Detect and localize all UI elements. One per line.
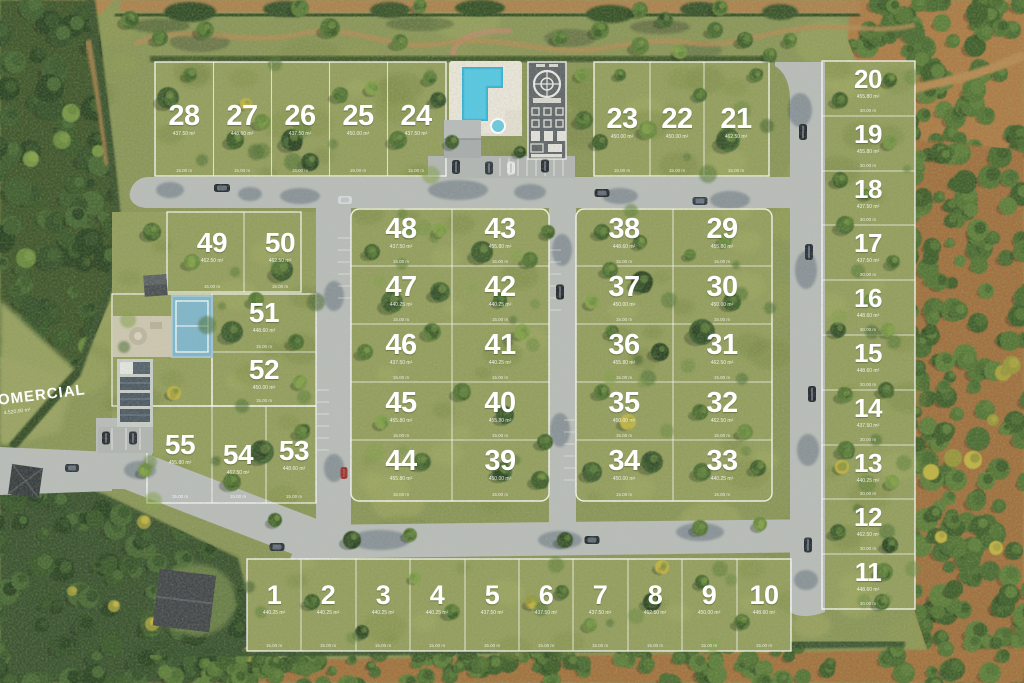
svg-text:15.00 m: 15.00 m bbox=[616, 375, 633, 380]
svg-text:4: 4 bbox=[430, 580, 445, 610]
svg-text:450.00 m²: 450.00 m² bbox=[489, 476, 512, 482]
svg-text:27: 27 bbox=[226, 100, 257, 132]
svg-text:437.50 m²: 437.50 m² bbox=[390, 360, 413, 366]
svg-text:437.50 m²: 437.50 m² bbox=[857, 204, 880, 210]
svg-text:440.25 m²: 440.25 m² bbox=[426, 610, 449, 616]
svg-text:30.00 m: 30.00 m bbox=[860, 327, 877, 332]
svg-text:55: 55 bbox=[165, 429, 195, 460]
svg-text:2: 2 bbox=[321, 580, 336, 610]
svg-text:462.50 m²: 462.50 m² bbox=[269, 258, 292, 264]
svg-text:455.80 m²: 455.80 m² bbox=[489, 418, 512, 424]
svg-text:440.25 m²: 440.25 m² bbox=[317, 610, 340, 616]
svg-text:450.00 m²: 450.00 m² bbox=[347, 131, 370, 137]
svg-text:30.00 m: 30.00 m bbox=[860, 163, 877, 168]
svg-text:15.00 m: 15.00 m bbox=[350, 168, 367, 173]
svg-text:32: 32 bbox=[706, 387, 737, 419]
svg-text:36: 36 bbox=[608, 329, 640, 361]
svg-text:30.00 m: 30.00 m bbox=[860, 601, 877, 606]
svg-text:15.00 m: 15.00 m bbox=[538, 643, 555, 648]
svg-text:15.00 m: 15.00 m bbox=[375, 643, 392, 648]
svg-text:462.50 m²: 462.50 m² bbox=[644, 610, 667, 616]
svg-text:15.00 m: 15.00 m bbox=[616, 492, 633, 497]
svg-text:437.50 m²: 437.50 m² bbox=[289, 131, 312, 137]
svg-text:39: 39 bbox=[484, 445, 516, 477]
svg-text:15.00 m: 15.00 m bbox=[714, 492, 731, 497]
svg-text:440.25 m²: 440.25 m² bbox=[372, 610, 395, 616]
svg-text:15.00 m: 15.00 m bbox=[492, 492, 509, 497]
svg-text:15.00 m: 15.00 m bbox=[492, 433, 509, 438]
svg-text:15.00 m: 15.00 m bbox=[714, 317, 731, 322]
svg-text:13: 13 bbox=[854, 448, 882, 478]
svg-text:51: 51 bbox=[249, 297, 279, 328]
svg-text:15.00 m: 15.00 m bbox=[714, 375, 731, 380]
svg-text:15: 15 bbox=[854, 338, 882, 368]
svg-text:48: 48 bbox=[385, 213, 417, 245]
svg-text:15.00 m: 15.00 m bbox=[429, 643, 446, 648]
svg-text:12: 12 bbox=[854, 502, 882, 532]
svg-text:450.00 m²: 450.00 m² bbox=[611, 134, 634, 140]
svg-text:15.00 m: 15.00 m bbox=[266, 643, 283, 648]
svg-text:50: 50 bbox=[265, 227, 295, 258]
svg-text:24: 24 bbox=[400, 100, 432, 132]
svg-text:437.50 m²: 437.50 m² bbox=[390, 244, 413, 250]
svg-text:437.50 m²: 437.50 m² bbox=[589, 610, 612, 616]
svg-text:54: 54 bbox=[223, 439, 254, 470]
svg-text:448.60 m²: 448.60 m² bbox=[253, 328, 276, 334]
svg-text:28: 28 bbox=[168, 100, 200, 132]
svg-text:29: 29 bbox=[706, 213, 738, 245]
svg-text:44: 44 bbox=[385, 445, 417, 477]
svg-text:34: 34 bbox=[608, 445, 640, 477]
svg-text:37: 37 bbox=[608, 271, 639, 303]
svg-text:15.00 m: 15.00 m bbox=[614, 168, 631, 173]
svg-text:30.00 m: 30.00 m bbox=[860, 217, 877, 222]
svg-text:15.00 m: 15.00 m bbox=[393, 433, 410, 438]
svg-text:455.80 m²: 455.80 m² bbox=[489, 244, 512, 250]
svg-text:15.00 m: 15.00 m bbox=[484, 643, 501, 648]
svg-text:448.60 m²: 448.60 m² bbox=[857, 313, 880, 319]
svg-text:45: 45 bbox=[385, 387, 417, 419]
svg-text:14: 14 bbox=[854, 393, 883, 423]
svg-text:437.50 m²: 437.50 m² bbox=[481, 610, 504, 616]
svg-text:462.50 m²: 462.50 m² bbox=[857, 532, 880, 538]
svg-text:7: 7 bbox=[593, 580, 608, 610]
svg-text:15.00 m: 15.00 m bbox=[393, 492, 410, 497]
svg-text:462.50 m²: 462.50 m² bbox=[725, 134, 748, 140]
svg-text:455.80 m²: 455.80 m² bbox=[169, 460, 192, 466]
svg-text:15.00 m: 15.00 m bbox=[492, 259, 509, 264]
svg-text:9: 9 bbox=[702, 580, 717, 610]
svg-text:15.00 m: 15.00 m bbox=[256, 344, 273, 349]
svg-text:21: 21 bbox=[720, 103, 752, 135]
svg-text:26: 26 bbox=[284, 100, 316, 132]
svg-text:15.00 m: 15.00 m bbox=[320, 643, 337, 648]
svg-text:450.00 m²: 450.00 m² bbox=[253, 385, 276, 391]
svg-text:462.50 m²: 462.50 m² bbox=[711, 418, 734, 424]
svg-text:5: 5 bbox=[485, 580, 500, 610]
svg-text:462.50 m²: 462.50 m² bbox=[201, 258, 224, 264]
svg-text:15.00 m: 15.00 m bbox=[393, 259, 410, 264]
svg-text:20: 20 bbox=[854, 64, 882, 94]
svg-text:440.25 m²: 440.25 m² bbox=[263, 610, 286, 616]
svg-text:15.00 m: 15.00 m bbox=[669, 168, 686, 173]
svg-text:30.00 m: 30.00 m bbox=[860, 546, 877, 551]
svg-text:41: 41 bbox=[484, 329, 516, 361]
svg-text:15.00 m: 15.00 m bbox=[714, 259, 731, 264]
svg-text:15.00 m: 15.00 m bbox=[286, 494, 303, 499]
svg-text:15.00 m: 15.00 m bbox=[756, 643, 773, 648]
svg-text:15.00 m: 15.00 m bbox=[728, 168, 745, 173]
svg-text:15.00 m: 15.00 m bbox=[234, 168, 251, 173]
svg-text:450.00 m²: 450.00 m² bbox=[698, 610, 721, 616]
svg-text:440.25 m²: 440.25 m² bbox=[857, 478, 880, 484]
svg-text:440.25 m²: 440.25 m² bbox=[711, 476, 734, 482]
svg-text:30.00 m: 30.00 m bbox=[860, 382, 877, 387]
svg-text:450.00 m²: 450.00 m² bbox=[666, 134, 689, 140]
svg-text:30.00 m: 30.00 m bbox=[860, 108, 877, 113]
svg-text:25: 25 bbox=[342, 100, 374, 132]
svg-text:30.00 m: 30.00 m bbox=[860, 272, 877, 277]
svg-text:437.50 m²: 437.50 m² bbox=[405, 131, 428, 137]
svg-text:15.00 m: 15.00 m bbox=[272, 284, 289, 289]
svg-text:448.60 m²: 448.60 m² bbox=[753, 610, 776, 616]
svg-text:15.00 m: 15.00 m bbox=[256, 398, 273, 403]
svg-text:38: 38 bbox=[608, 213, 640, 245]
svg-text:437.50 m²: 437.50 m² bbox=[173, 131, 196, 137]
svg-text:40: 40 bbox=[484, 387, 515, 419]
svg-text:11: 11 bbox=[855, 557, 882, 587]
svg-text:15.00 m: 15.00 m bbox=[393, 375, 410, 380]
svg-text:15.00 m: 15.00 m bbox=[292, 168, 309, 173]
svg-text:15.00 m: 15.00 m bbox=[492, 375, 509, 380]
svg-text:15.00 m: 15.00 m bbox=[592, 643, 609, 648]
svg-text:448.60 m²: 448.60 m² bbox=[857, 587, 880, 593]
svg-text:15.00 m: 15.00 m bbox=[204, 284, 221, 289]
svg-text:15.00 m: 15.00 m bbox=[616, 433, 633, 438]
svg-text:19: 19 bbox=[854, 119, 882, 149]
svg-text:16: 16 bbox=[854, 283, 882, 313]
svg-text:15.00 m: 15.00 m bbox=[393, 317, 410, 322]
svg-text:440.25 m²: 440.25 m² bbox=[489, 360, 512, 366]
svg-text:450.00 m²: 450.00 m² bbox=[711, 302, 734, 308]
svg-text:450.00 m²: 450.00 m² bbox=[613, 476, 636, 482]
svg-text:33: 33 bbox=[706, 445, 738, 477]
svg-text:462.50 m²: 462.50 m² bbox=[227, 470, 250, 476]
svg-text:455.80 m²: 455.80 m² bbox=[711, 244, 734, 250]
svg-text:42: 42 bbox=[484, 271, 515, 303]
svg-text:437.50 m²: 437.50 m² bbox=[857, 258, 880, 264]
svg-text:450.00 m²: 450.00 m² bbox=[613, 302, 636, 308]
svg-text:15.00 m: 15.00 m bbox=[492, 317, 509, 322]
svg-text:10: 10 bbox=[749, 580, 778, 610]
svg-text:437.50 m²: 437.50 m² bbox=[535, 610, 558, 616]
svg-text:1: 1 bbox=[267, 580, 282, 610]
svg-text:43: 43 bbox=[484, 213, 516, 245]
svg-text:23: 23 bbox=[606, 103, 638, 135]
svg-text:15.00 m: 15.00 m bbox=[714, 433, 731, 438]
svg-text:455.80 m²: 455.80 m² bbox=[857, 94, 880, 100]
svg-text:440.25 m²: 440.25 m² bbox=[390, 302, 413, 308]
svg-text:31: 31 bbox=[706, 329, 738, 361]
svg-text:6: 6 bbox=[539, 580, 554, 610]
svg-text:3: 3 bbox=[376, 580, 391, 610]
svg-text:15.00 m: 15.00 m bbox=[176, 168, 193, 173]
svg-text:455.80 m²: 455.80 m² bbox=[390, 476, 413, 482]
svg-text:462.50 m²: 462.50 m² bbox=[711, 360, 734, 366]
svg-text:440.25 m²: 440.25 m² bbox=[489, 302, 512, 308]
svg-text:52: 52 bbox=[249, 354, 279, 385]
svg-text:448.60 m²: 448.60 m² bbox=[857, 368, 880, 374]
svg-text:437.50 m²: 437.50 m² bbox=[857, 423, 880, 429]
svg-text:450.00 m²: 450.00 m² bbox=[613, 418, 636, 424]
svg-text:47: 47 bbox=[385, 271, 416, 303]
svg-text:15.00 m: 15.00 m bbox=[647, 643, 664, 648]
svg-text:30: 30 bbox=[706, 271, 737, 303]
svg-text:448.60 m²: 448.60 m² bbox=[613, 244, 636, 250]
svg-text:53: 53 bbox=[279, 435, 309, 466]
svg-text:448.60 m²: 448.60 m² bbox=[231, 131, 254, 137]
svg-text:15.00 m: 15.00 m bbox=[408, 168, 425, 173]
svg-text:35: 35 bbox=[608, 387, 640, 419]
svg-text:455.80 m²: 455.80 m² bbox=[857, 149, 880, 155]
svg-text:15.00 m: 15.00 m bbox=[616, 317, 633, 322]
svg-text:448.60 m²: 448.60 m² bbox=[283, 466, 306, 472]
svg-text:46: 46 bbox=[385, 329, 417, 361]
svg-text:15.00 m: 15.00 m bbox=[701, 643, 718, 648]
svg-text:15.00 m: 15.00 m bbox=[230, 494, 247, 499]
svg-text:49: 49 bbox=[197, 227, 227, 258]
svg-text:455.80 m²: 455.80 m² bbox=[613, 360, 636, 366]
svg-text:8: 8 bbox=[648, 580, 663, 610]
svg-text:30.00 m: 30.00 m bbox=[860, 437, 877, 442]
svg-text:17: 17 bbox=[854, 228, 882, 258]
svg-text:18: 18 bbox=[854, 174, 882, 204]
svg-text:455.80 m²: 455.80 m² bbox=[390, 418, 413, 424]
svg-text:30.00 m: 30.00 m bbox=[860, 491, 877, 496]
svg-text:15.00 m: 15.00 m bbox=[172, 494, 189, 499]
svg-text:15.00 m: 15.00 m bbox=[616, 259, 633, 264]
svg-text:22: 22 bbox=[661, 103, 692, 135]
